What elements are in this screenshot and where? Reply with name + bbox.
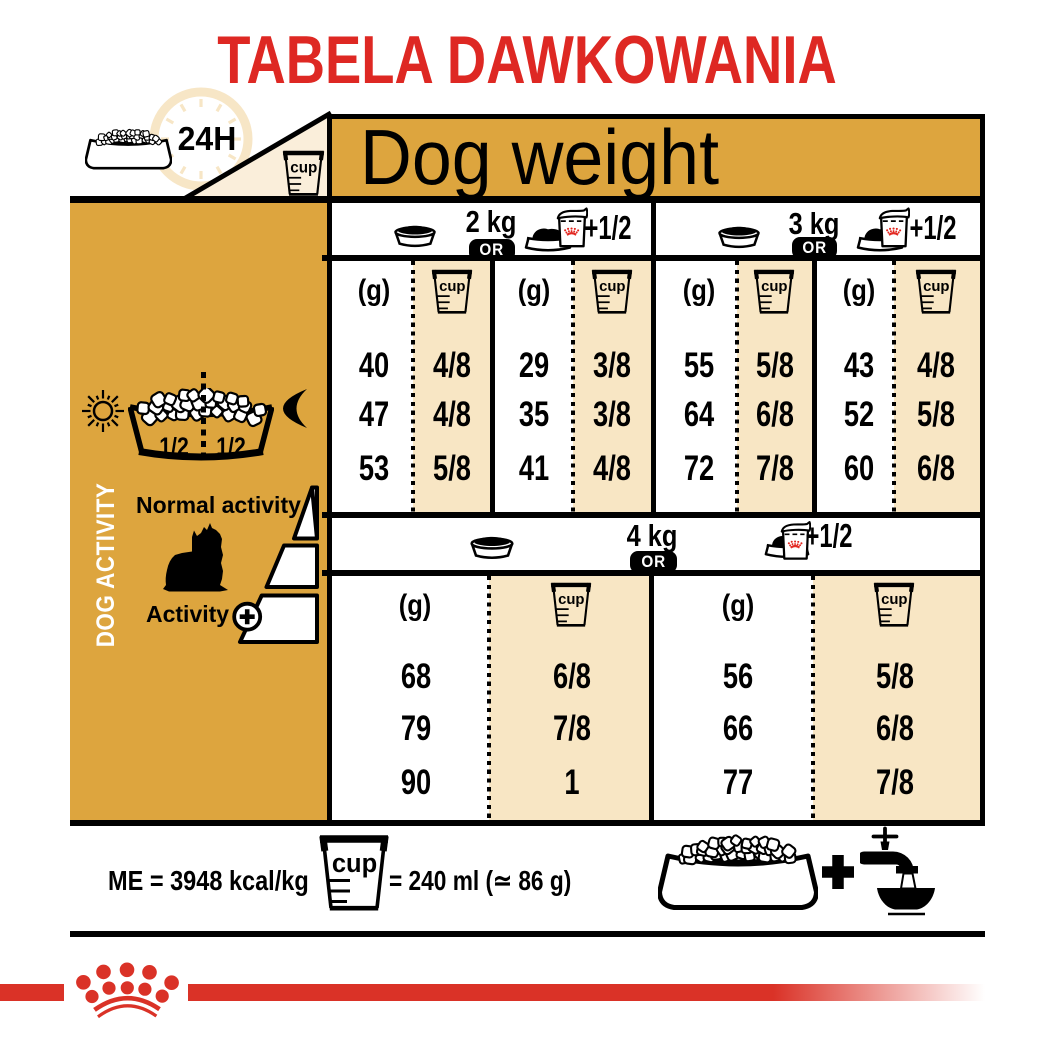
svg-text:cup: cup: [558, 592, 584, 608]
svg-text:cup: cup: [332, 850, 377, 878]
svg-text:cup: cup: [881, 592, 907, 608]
svg-text:cup: cup: [439, 279, 465, 295]
svg-text:cup: cup: [761, 279, 787, 295]
svg-text:cup: cup: [923, 279, 949, 295]
svg-text:cup: cup: [599, 279, 625, 295]
svg-text:cup: cup: [290, 160, 317, 177]
